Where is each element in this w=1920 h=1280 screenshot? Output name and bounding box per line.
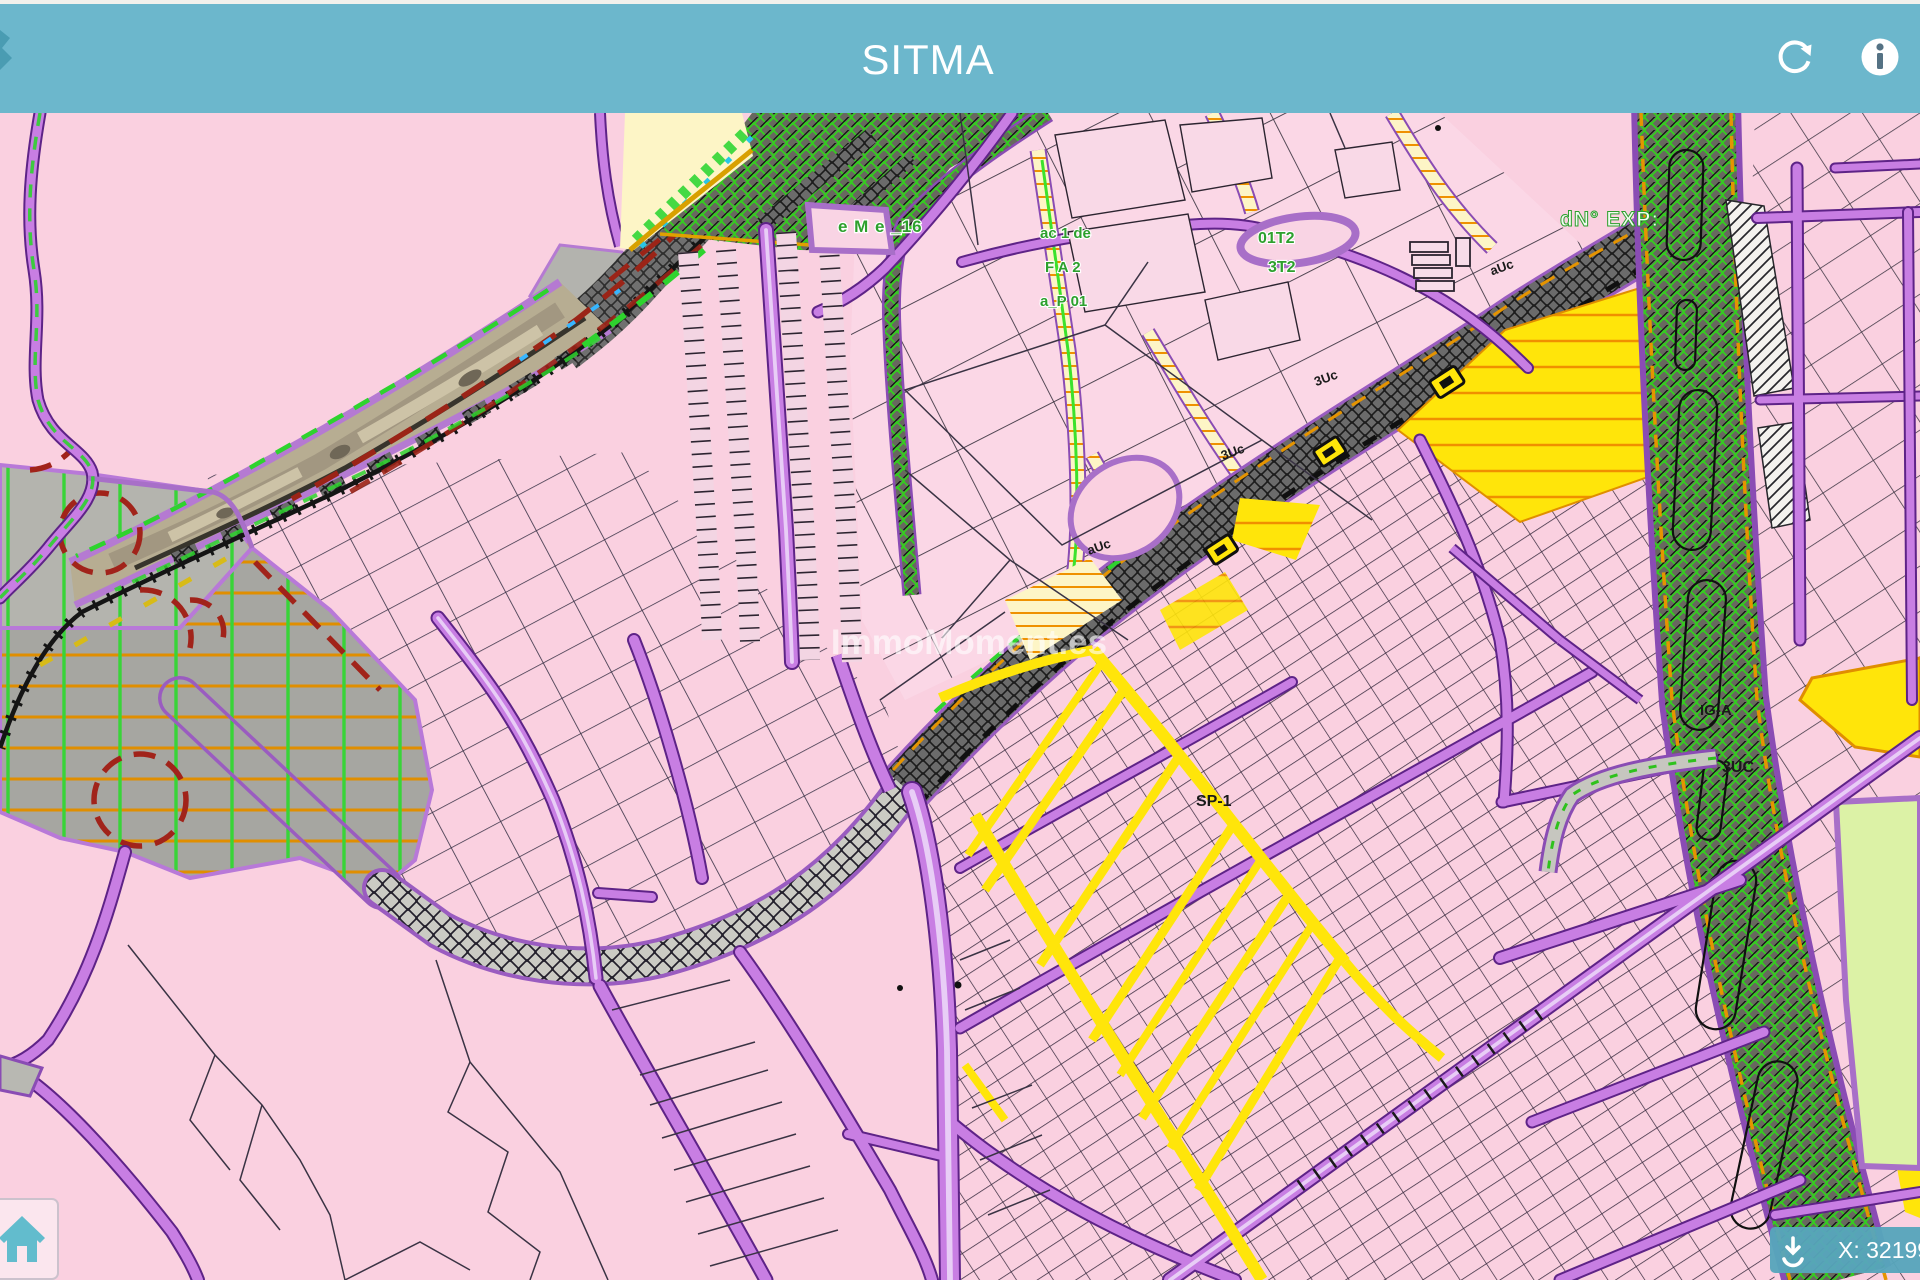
svg-text:SITMA: SITMA (861, 36, 994, 83)
svg-text:e M e _16: e M e _16 (838, 217, 923, 236)
svg-text:a_P 01: a_P 01 (1040, 293, 1087, 310)
svg-text:F A 2: F A 2 (1045, 259, 1081, 276)
svg-text:dN° EXP:: dN° EXP: (1560, 208, 1659, 231)
svg-text:ImmoMoment.es: ImmoMoment.es (831, 623, 1107, 662)
svg-text:IG-A: IG-A (1700, 702, 1732, 719)
svg-text:ac 1 de: ac 1 de (1040, 225, 1091, 242)
svg-text:X: 32199: X: 32199 (1838, 1237, 1920, 1263)
svg-text:01T2: 01T2 (1258, 230, 1295, 247)
svg-text:SP-1: SP-1 (1196, 793, 1232, 810)
svg-text:3UC: 3UC (1722, 759, 1754, 776)
svg-text:3T2: 3T2 (1268, 259, 1296, 276)
